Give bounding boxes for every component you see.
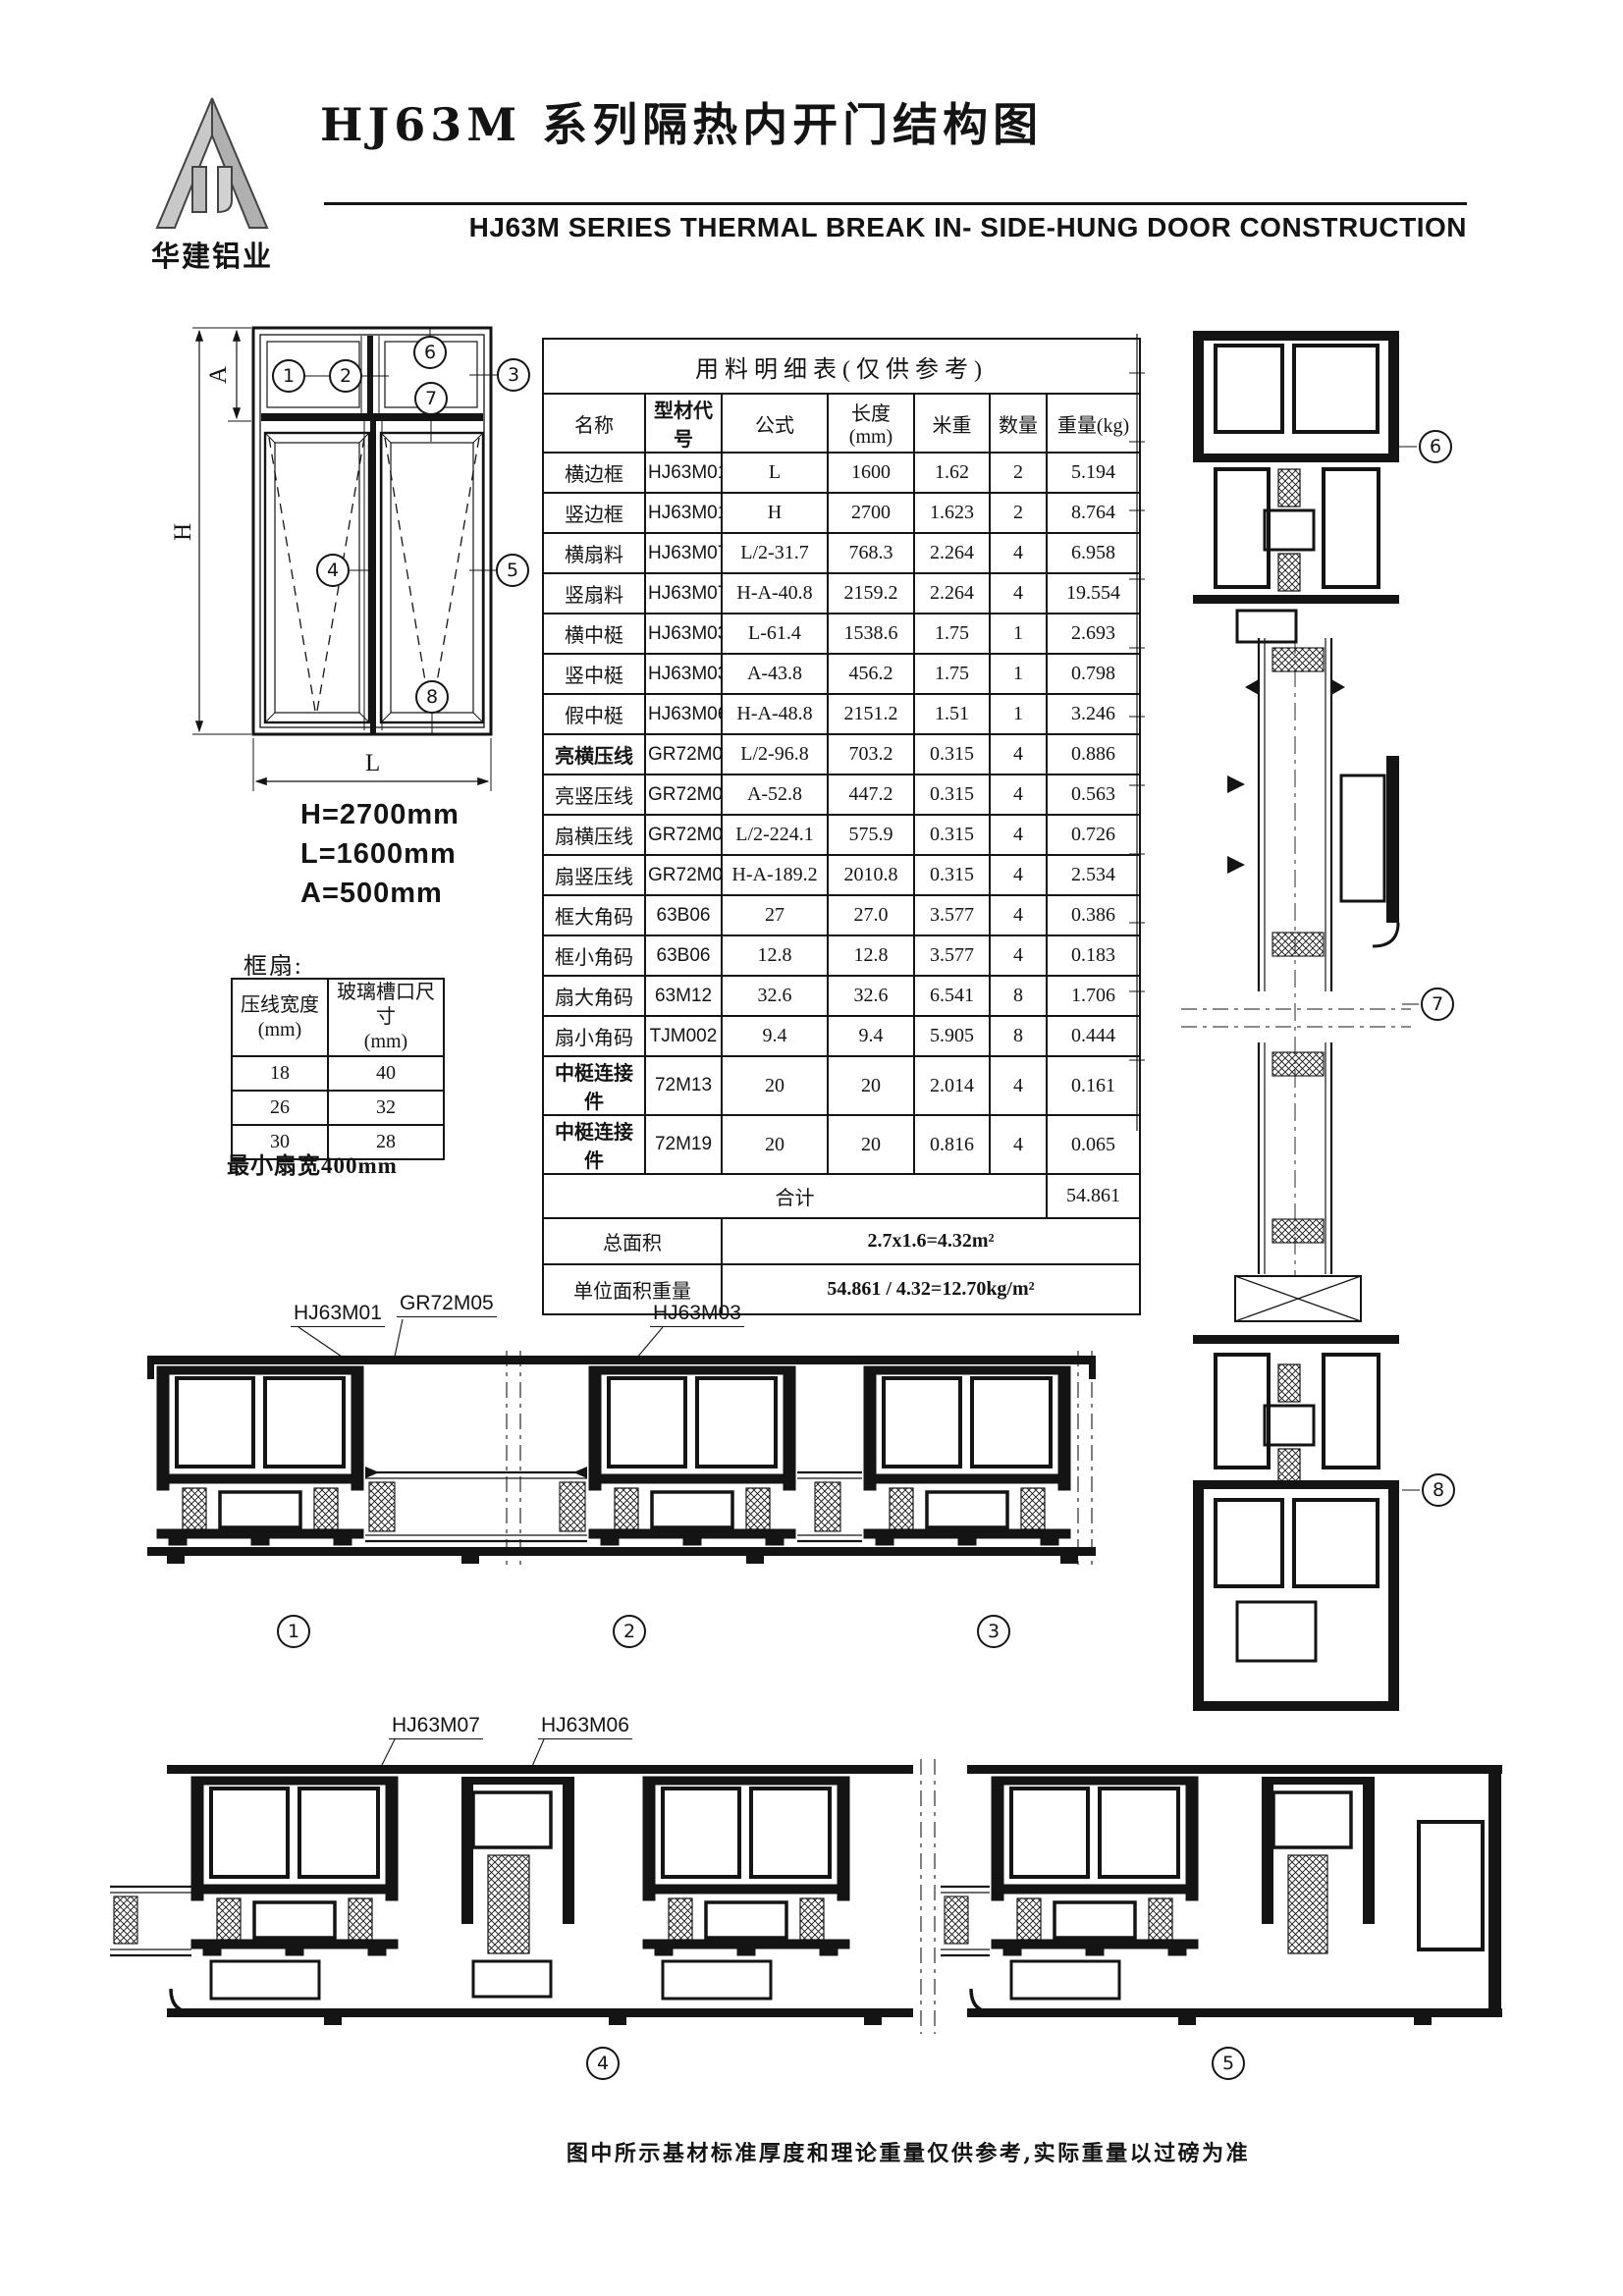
- profile-label-hj63m07: HJ63M07: [389, 1714, 483, 1739]
- section-callout-6: 6: [1419, 430, 1452, 463]
- title-rule: [324, 202, 1467, 205]
- footer-note: 图中所示基材标准厚度和理论重量仅供参考,实际重量以过磅为准: [393, 2136, 1424, 2167]
- elevation-callout-6: 6: [413, 336, 447, 369]
- section-band-bottom: [110, 1739, 1502, 2034]
- dim-height: H=2700mm: [300, 795, 460, 834]
- profile-label-hj63m03: HJ63M03: [650, 1302, 744, 1327]
- elevation-callout-1: 1: [272, 359, 305, 393]
- col-formula: 公式: [722, 394, 828, 453]
- company-logo: [157, 98, 267, 228]
- col-qty: 数量: [990, 394, 1047, 453]
- elevation-callout-4: 4: [316, 554, 350, 587]
- materials-row: 竖边框HJ63M01H27001.62328.764: [543, 493, 1140, 533]
- frame-sash-body: 184026323028: [232, 1056, 444, 1159]
- unit-weight-value: 54.861 / 4.32=12.70kg/m²: [722, 1264, 1140, 1314]
- materials-row: 扇小角码TJM0029.49.45.90580.444: [543, 1016, 1140, 1056]
- elevation-callout-5: 5: [496, 554, 529, 587]
- frame-sash-table: 压线宽度 (mm) 玻璃槽口尺寸 (mm) 184026323028: [231, 978, 445, 1160]
- min-sash-width-note: 最小扇宽400mm: [227, 1147, 398, 1180]
- col-meter-weight: 米重: [914, 394, 990, 453]
- dim-label-l: L: [365, 750, 380, 777]
- company-name: 华建铝业: [132, 234, 293, 275]
- materials-table-title: 用料明细表(仅供参考): [543, 339, 1140, 394]
- col-length: 长度(mm): [828, 394, 914, 453]
- elevation-callout-3: 3: [497, 358, 530, 392]
- section-callout-4: 4: [586, 2047, 620, 2080]
- section-callout-3: 3: [977, 1615, 1010, 1648]
- materials-row: 扇横压线GR72M05L/2-224.1575.90.31540.726: [543, 815, 1140, 855]
- materials-row: 中梃连接件72M1920200.81640.065: [543, 1115, 1140, 1174]
- area-value: 2.7x1.6=4.32m²: [722, 1218, 1140, 1264]
- col-weight: 重量(kg): [1047, 394, 1140, 453]
- col-bead-width: 压线宽度 (mm): [232, 979, 328, 1056]
- materials-row: 亮横压线GR72M05L/2-96.8703.20.31540.886: [543, 734, 1140, 774]
- total-row: 合计 54.861: [543, 1174, 1140, 1218]
- frame-sash-row: 2632: [232, 1091, 444, 1125]
- frame-sash-header-row: 压线宽度 (mm) 玻璃槽口尺寸 (mm): [232, 979, 444, 1056]
- materials-row: 中梃连接件72M1320202.01440.161: [543, 1056, 1140, 1115]
- materials-row: 横扇料HJ63M07L/2-31.7768.32.26446.958: [543, 533, 1140, 573]
- materials-row: 框小角码63B0612.812.83.57740.183: [543, 935, 1140, 976]
- col-glass-notch: 玻璃槽口尺寸 (mm): [328, 979, 444, 1056]
- materials-row: 竖中梃HJ63M03A-43.8456.21.7510.798: [543, 654, 1140, 694]
- total-value: 54.861: [1047, 1174, 1140, 1218]
- profile-label-gr72m05: GR72M05: [397, 1292, 497, 1317]
- materials-row: 框大角码63B062727.03.57740.386: [543, 895, 1140, 935]
- materials-header-row: 名称 型材代号 公式 长度(mm) 米重 数量 重量(kg): [543, 394, 1140, 453]
- materials-row: 亮竖压线GR72M05A-52.8447.20.31540.563: [543, 774, 1140, 815]
- materials-row: 竖扇料HJ63M07H-A-40.82159.22.264419.554: [543, 573, 1140, 614]
- page-subtitle: HJ63M SERIES THERMAL BREAK IN- SIDE-HUNG…: [324, 212, 1467, 243]
- dim-label-h: H: [170, 523, 197, 541]
- col-profile-code: 型材代号: [645, 394, 722, 453]
- overall-dimensions: H=2700mm L=1600mm A=500mm: [300, 795, 460, 913]
- elevation-callout-7: 7: [414, 382, 448, 415]
- frame-sash-caption: 框扇:: [243, 946, 303, 981]
- section-callout-1: 1: [277, 1615, 310, 1648]
- elevation-callout-8: 8: [415, 680, 449, 714]
- area-label: 总面积: [543, 1218, 722, 1264]
- section-callout-2: 2: [613, 1615, 646, 1648]
- materials-table: 用料明细表(仅供参考) 名称 型材代号 公式 长度(mm) 米重 数量 重量(k…: [542, 338, 1141, 1315]
- materials-row: 横边框HJ63M01L16001.6225.194: [543, 453, 1140, 493]
- materials-row: 扇竖压线GR72M05H-A-189.22010.80.31542.534: [543, 855, 1140, 895]
- materials-row: 横中梃HJ63M03L-61.41538.61.7512.693: [543, 614, 1140, 654]
- unit-weight-row: 单位面积重量 54.861 / 4.32=12.70kg/m²: [543, 1264, 1140, 1314]
- section-callout-5: 5: [1212, 2047, 1245, 2080]
- materials-row: 假中梃HJ63M06H-A-48.82151.21.5113.246: [543, 694, 1140, 734]
- elevation-callout-2: 2: [329, 359, 362, 393]
- dim-transom: A=500mm: [300, 874, 460, 913]
- drawing-sheet: HJ63M 系列隔热内开门结构图 HJ63M SERIES THERMAL BR…: [0, 0, 1623, 2296]
- materials-row: 扇大角码63M1232.632.66.54181.706: [543, 976, 1140, 1016]
- total-label: 合计: [543, 1174, 1047, 1218]
- profile-label-hj63m06: HJ63M06: [538, 1714, 632, 1739]
- profile-label-hj63m01: HJ63M01: [291, 1302, 385, 1327]
- col-name: 名称: [543, 394, 645, 453]
- area-row: 总面积 2.7x1.6=4.32m²: [543, 1218, 1140, 1264]
- dim-label-a: A: [205, 366, 233, 384]
- page-title: HJ63M 系列隔热内开门结构图: [320, 98, 1043, 152]
- frame-sash-row: 1840: [232, 1056, 444, 1091]
- materials-table-title-row: 用料明细表(仅供参考): [543, 339, 1140, 394]
- section-callout-7: 7: [1421, 988, 1454, 1021]
- dim-width: L=1600mm: [300, 834, 460, 874]
- section-callout-8: 8: [1422, 1473, 1455, 1507]
- materials-table-body: 横边框HJ63M01L16001.6225.194竖边框HJ63M01H2700…: [543, 453, 1140, 1174]
- section-band-top: [147, 1319, 1096, 1569]
- section-strip-right: [1129, 331, 1420, 1711]
